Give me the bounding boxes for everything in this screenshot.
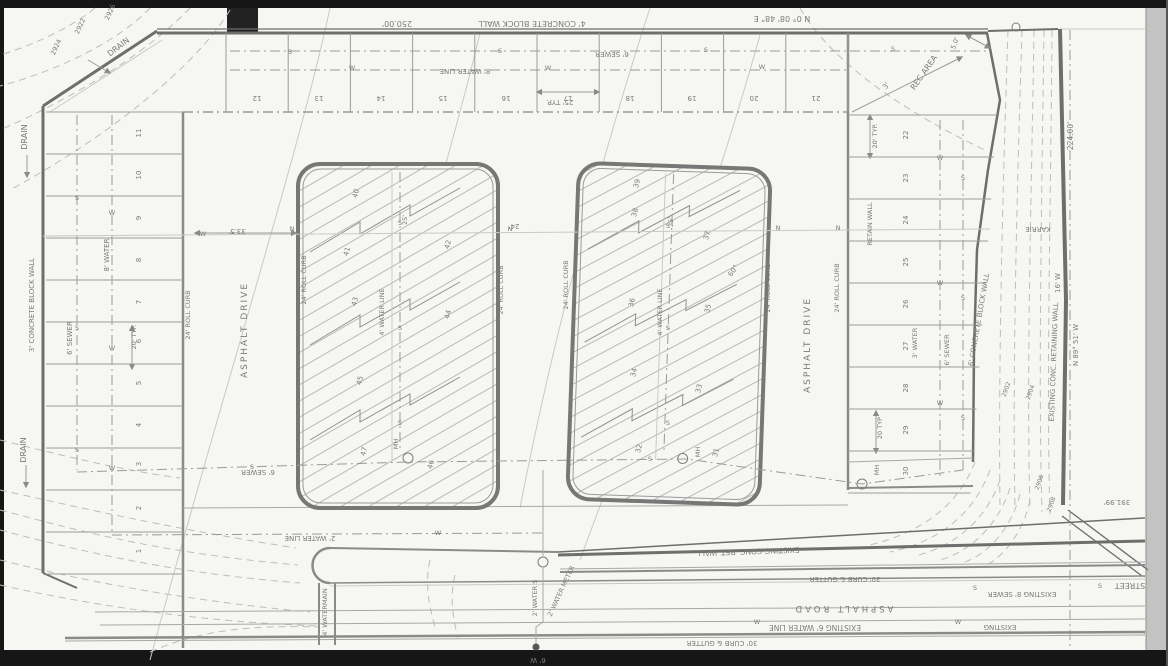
label-tap-6w: 6' W <box>530 656 546 664</box>
line-marker-W: W <box>937 154 944 162</box>
label-dim-224: 224.00' <box>1066 122 1075 150</box>
scan-margin-right <box>1146 8 1168 650</box>
label-stall-8: 8 <box>135 258 143 262</box>
line-marker-W: W <box>109 464 116 472</box>
building-east <box>567 163 771 505</box>
label-stall-14: 14 <box>376 94 385 102</box>
label-street-karrie: KARRIE <box>1025 225 1050 233</box>
label-drain-sw: DRAIN <box>19 437 28 462</box>
label-stall-7: 7 <box>135 300 143 304</box>
line-marker-S: S <box>973 584 977 592</box>
label-stall-11: 11 <box>135 129 143 138</box>
line-marker-W: W <box>759 63 766 71</box>
line-marker-W: W <box>545 64 552 72</box>
label-stall-1: 1 <box>135 549 143 553</box>
label-right-water-label: 3' WATER <box>911 327 919 358</box>
label-drive-east-label: ASPHALT DRIVE <box>803 297 813 393</box>
label-stall-25: 25 <box>902 258 910 267</box>
label-roll-curb-2: 24' ROLL CURB <box>300 255 308 304</box>
line-marker-N: N <box>836 224 841 232</box>
label-stall-5: 5 <box>135 381 143 385</box>
line-marker-W: W <box>937 399 944 407</box>
label-top-wall-label: 4' CONCRETE BLOCK WALL <box>478 19 586 28</box>
label-stall-29: 29 <box>902 426 910 435</box>
line-marker-W: W <box>109 344 116 352</box>
line-marker-W: W <box>200 230 207 238</box>
site-plan-drawing: SSSSSSSSSSSSSSSSSSSSWWWWWWWWWWWWWNNNN 4'… <box>0 0 1168 666</box>
building-east-outline <box>567 163 771 505</box>
label-stall-30: 30 <box>902 467 910 476</box>
label-right-sewer-label: 6' SEWER <box>943 334 951 366</box>
label-mh-2: MH <box>694 447 702 458</box>
label-left-water-label: 8' WATER <box>103 238 111 271</box>
label-drive-west-label: ASPHALT DRIVE <box>240 282 250 378</box>
line-marker-S: S <box>498 47 502 55</box>
label-right-dim-20a: 20' TYP. <box>871 123 879 148</box>
line-marker-S: S <box>666 324 670 332</box>
line-marker-S: S <box>1098 582 1102 590</box>
line-marker-S: S <box>666 419 670 427</box>
label-roll-curb-3: 24' ROLL CURB <box>497 265 505 314</box>
label-stall-10: 10 <box>135 171 143 180</box>
label-curb-gutter-n: 30' CURB & GUTTER <box>809 575 880 583</box>
label-stall-21: 21 <box>812 94 821 102</box>
label-stall-3: 3 <box>135 462 143 466</box>
line-marker-S: S <box>75 324 79 332</box>
line-marker-W: W <box>754 618 761 626</box>
label-stall-18: 18 <box>626 94 635 102</box>
label-asphalt-road-label: ASPHALT ROAD <box>793 603 894 613</box>
label-stall-20: 20 <box>750 94 759 102</box>
label-curb-gutter-s: 30' CURB & GUTTER <box>686 639 757 647</box>
label-roll-curb-6: 24' ROLL CURB <box>833 263 841 312</box>
label-stall-17: 17 <box>564 94 573 102</box>
line-marker-S: S <box>891 45 895 53</box>
label-top-wall-dim: 250.00' <box>382 19 412 28</box>
label-roll-curb-4: 24' ROLL CURB <box>562 260 570 309</box>
scanned-site-plan: SSSSSSSSSSSSSSSSSSSSWWWWWWWWWWWWWNNNN 4'… <box>0 0 1168 666</box>
label-mh-1: MH <box>392 439 400 450</box>
frame-left <box>0 0 4 666</box>
line-marker-S: S <box>75 194 79 202</box>
label-stall-22: 22 <box>902 131 910 140</box>
building-west <box>298 164 498 508</box>
label-left-dim-20typ: 20' TYP. <box>130 324 138 349</box>
line-marker-S: S <box>961 294 965 302</box>
label-top-water-label: 8' WATER LINE <box>440 67 491 75</box>
label-stall-12: 12 <box>253 94 262 102</box>
line-marker-S: S <box>398 419 402 427</box>
label-left-wall-label: 3' CONCRETE BLOCK WALL <box>28 258 36 352</box>
line-marker-S: S <box>961 174 965 182</box>
line-marker-W: W <box>435 529 442 537</box>
label-mh-3: MH <box>873 465 881 476</box>
label-stall-24: 24 <box>902 215 910 224</box>
label-water-2-line: 2' WATER LINE <box>285 534 336 542</box>
label-stall-6: 6 <box>135 338 143 343</box>
label-right-retain-label: RETAIN WALL <box>866 202 874 246</box>
line-marker-S: S <box>704 46 708 54</box>
label-bearing-right: N 89° 51' W <box>1072 324 1080 366</box>
label-right-dim-20b: 20 TYP <box>876 417 884 439</box>
label-dim-39199: 391.99' <box>1104 498 1130 506</box>
label-stall-9: 9 <box>135 216 143 220</box>
line-marker-S: S <box>288 48 292 56</box>
label-drain-nw-2: DRAIN <box>20 124 29 149</box>
label-stall-2: 2 <box>135 506 143 510</box>
water-tap <box>533 644 540 651</box>
line-marker-S: S <box>648 455 652 463</box>
label-watermain-4: 4' WATERMAIN <box>321 588 329 636</box>
label-dim-25-bldg-r: 25' <box>667 217 675 227</box>
building-west-outline <box>298 164 498 508</box>
label-bldg-water-l: 4' WATER LINE <box>378 288 386 335</box>
label-exist-sewer-8: EXISTING 8' SEWER <box>988 590 1057 598</box>
frame-bottom <box>0 650 1168 666</box>
label-dim-335: 33.5' <box>228 227 246 235</box>
label-dim-24: 24' <box>509 222 520 230</box>
label-street-label: STREET <box>1115 581 1146 590</box>
label-water-2-s: 2' WATER S <box>531 580 539 617</box>
label-stall-19: 19 <box>688 94 697 102</box>
line-marker-W: W <box>955 618 962 626</box>
line-marker-S: S <box>75 446 79 454</box>
line-marker-N: N <box>776 224 781 232</box>
label-stall-27: 27 <box>902 342 910 351</box>
label-roll-curb-5: 24' ROLL CURB <box>764 263 772 312</box>
label-stall-26: 26 <box>902 299 910 308</box>
label-stall-16: 16 <box>501 94 510 102</box>
label-top-sewer-label: 6' SEWER <box>595 50 629 58</box>
label-stall-13: 13 <box>315 94 324 102</box>
label-roll-curb-1: 24' ROLL CURB <box>184 290 192 339</box>
label-top-bearing: N 0° 08' 48" E <box>754 14 811 23</box>
label-stall-23: 23 <box>902 174 910 183</box>
line-marker-W: W <box>349 64 356 72</box>
line-marker-S: S <box>961 414 965 422</box>
line-marker-W: W <box>937 279 944 287</box>
label-exist-w-label: EXISTING <box>984 623 1017 631</box>
line-marker-W: W <box>109 209 116 217</box>
label-exist-water-6: EXISTING 6' WATER LINE <box>769 623 861 632</box>
line-marker-N: N <box>290 225 295 233</box>
label-dim-25-bldg-l: 25' <box>401 215 409 225</box>
label-stall-28: 28 <box>902 384 910 393</box>
label-stall-4: 4 <box>135 422 143 427</box>
line-marker-S: S <box>398 324 402 332</box>
label-sewer-6-s: 6' SEWER <box>241 468 275 476</box>
label-bldg-water-r: 4' WATER LINE <box>656 288 664 335</box>
label-stall-15: 15 <box>439 94 448 102</box>
label-dim-16w: 16' W <box>1054 273 1062 293</box>
frame-top <box>0 0 1168 8</box>
label-left-sewer-label: 6' SEWER <box>66 321 74 355</box>
